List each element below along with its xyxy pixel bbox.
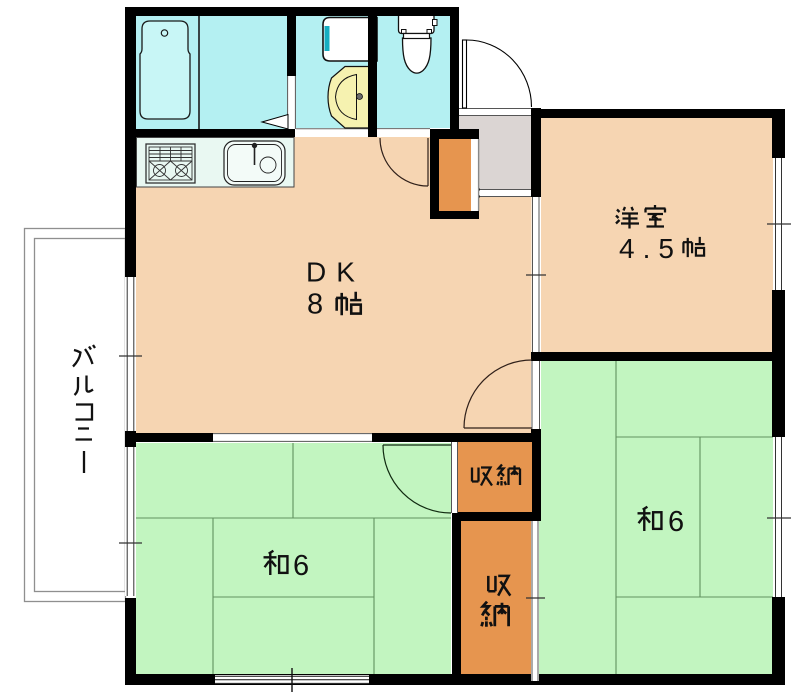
svg-text:6: 6	[668, 506, 684, 538]
svg-text:4.5: 4.5	[619, 233, 682, 264]
svg-text:8: 8	[307, 289, 323, 321]
svg-text:6: 6	[293, 550, 309, 582]
svg-text:DK: DK	[306, 257, 365, 288]
